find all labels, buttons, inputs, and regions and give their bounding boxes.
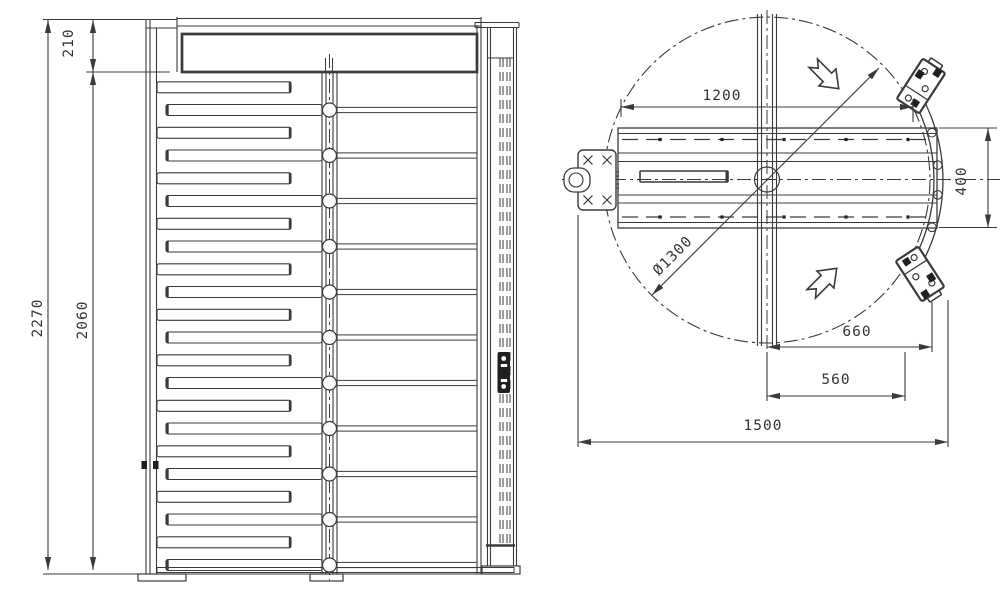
- dim-label-560: 560: [821, 372, 850, 388]
- plan-view-top: [562, 10, 1000, 447]
- turnstile-technical-drawing: 2270 2060 210 1200 Ø1300 400 660 560 150…: [0, 0, 1000, 599]
- dim-label-660: 660: [842, 324, 871, 340]
- dim-label-overall-width: 1500: [744, 418, 783, 434]
- dim-label-rotation-diameter: Ø1300: [650, 233, 696, 279]
- dim-label-rail-width: 400: [954, 166, 970, 195]
- reader-device: [897, 54, 949, 113]
- dim-label-arm-span: 1200: [703, 88, 742, 104]
- drawing-canvas: 2270 2060 210 1200 Ø1300 400 660 560 150…: [0, 0, 1000, 599]
- exit-direction-arrow-icon: [803, 260, 845, 302]
- entry-direction-arrow-icon: [805, 55, 847, 97]
- front-view-elevation: [43, 17, 520, 581]
- dim-label-total-height: 2270: [30, 299, 46, 338]
- dim-label-rotor-height: 2060: [75, 301, 91, 340]
- reader-device: [896, 247, 948, 306]
- dim-label-header-height: 210: [61, 28, 77, 57]
